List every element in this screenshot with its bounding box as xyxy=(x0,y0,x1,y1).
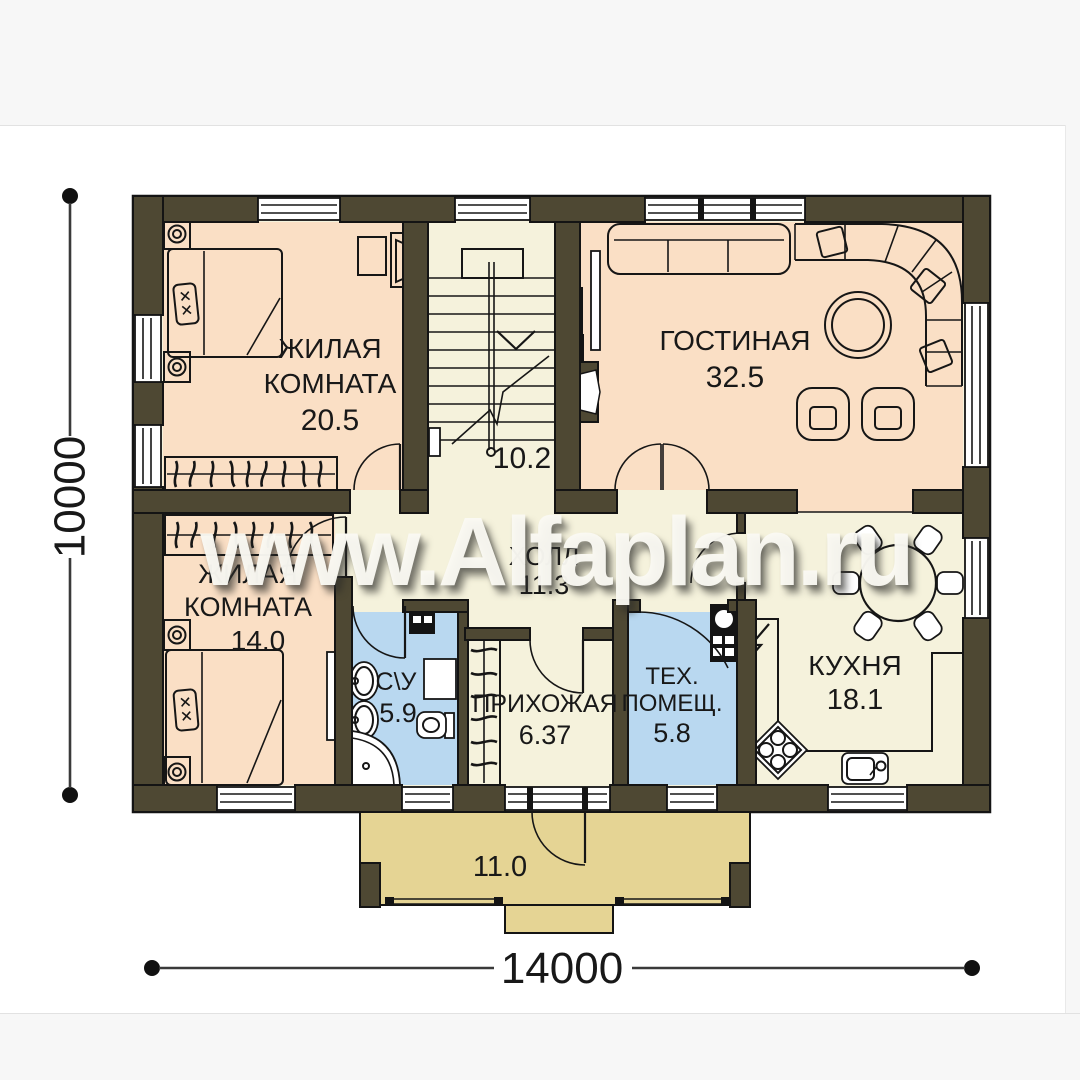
terrace xyxy=(360,812,750,933)
tech-name-line1: ТЕХ. xyxy=(645,663,698,690)
window xyxy=(828,787,907,810)
window xyxy=(455,198,530,220)
bedroom2-name-line2: КОМНАТА xyxy=(184,592,312,622)
window xyxy=(645,198,805,220)
entry-area: 6.37 xyxy=(519,720,572,750)
dimension-width: 14000 xyxy=(144,944,980,993)
window xyxy=(965,538,988,618)
page-bottom-margin xyxy=(0,1013,1080,1080)
floor-plan-page: ЖИЛАЯ КОМНАТА 20.5 ГОСТИНАЯ 32.5 10.2 ЖИ… xyxy=(0,0,1080,1080)
bathroom-name: С\У xyxy=(376,668,417,696)
bedroom1-area: 20.5 xyxy=(301,404,359,437)
window xyxy=(135,315,161,382)
bedroom1-name-line1: ЖИЛАЯ xyxy=(278,333,381,364)
terrace-area: 11.0 xyxy=(473,851,527,883)
terrace-post xyxy=(360,863,380,907)
floor-plan-drawing: ЖИЛАЯ КОМНАТА 20.5 ГОСТИНАЯ 32.5 10.2 ЖИ… xyxy=(0,0,1080,1080)
entry-name: ПРИХОЖАЯ xyxy=(472,690,617,718)
window xyxy=(667,787,717,810)
hall-name: ХОЛЛ xyxy=(509,541,580,571)
stairs-area: 10.2 xyxy=(493,442,551,475)
bedroom2-area: 14.0 xyxy=(231,625,286,656)
kitchen-name: КУХНЯ xyxy=(808,650,902,681)
window xyxy=(965,303,988,467)
window xyxy=(135,425,161,487)
kitchen-area: 18.1 xyxy=(827,684,883,716)
radiator-icon xyxy=(429,428,440,456)
radiator-icon xyxy=(327,652,335,740)
terrace-step xyxy=(505,905,613,933)
window xyxy=(258,198,340,220)
page-right-margin xyxy=(1065,125,1080,1013)
width-dimension-label: 14000 xyxy=(501,944,623,993)
dimension-height: 10000 xyxy=(46,188,95,803)
tech-area: 5.8 xyxy=(653,718,691,748)
living-area: 32.5 xyxy=(706,361,764,394)
tech-name-line2: ПОМЕЩ. xyxy=(621,690,722,717)
sink-icon xyxy=(350,662,378,700)
toilet-icon xyxy=(417,712,454,738)
bedroom1-name-line2: КОМНАТА xyxy=(264,368,397,399)
bathroom-area: 5.9 xyxy=(379,698,417,728)
hall-area: 11.3 xyxy=(519,570,570,600)
living-name: ГОСТИНАЯ xyxy=(659,325,810,356)
window xyxy=(402,787,453,810)
terrace-post xyxy=(730,863,750,907)
window xyxy=(217,787,295,810)
washer-icon xyxy=(409,612,435,634)
tv-panel-icon xyxy=(591,251,600,350)
cabinet-icon xyxy=(424,659,456,699)
bedroom2-name-line1: ЖИЛАЯ xyxy=(198,559,298,589)
kitchen-sink-icon xyxy=(842,753,888,784)
height-dimension-label: 10000 xyxy=(46,436,95,558)
